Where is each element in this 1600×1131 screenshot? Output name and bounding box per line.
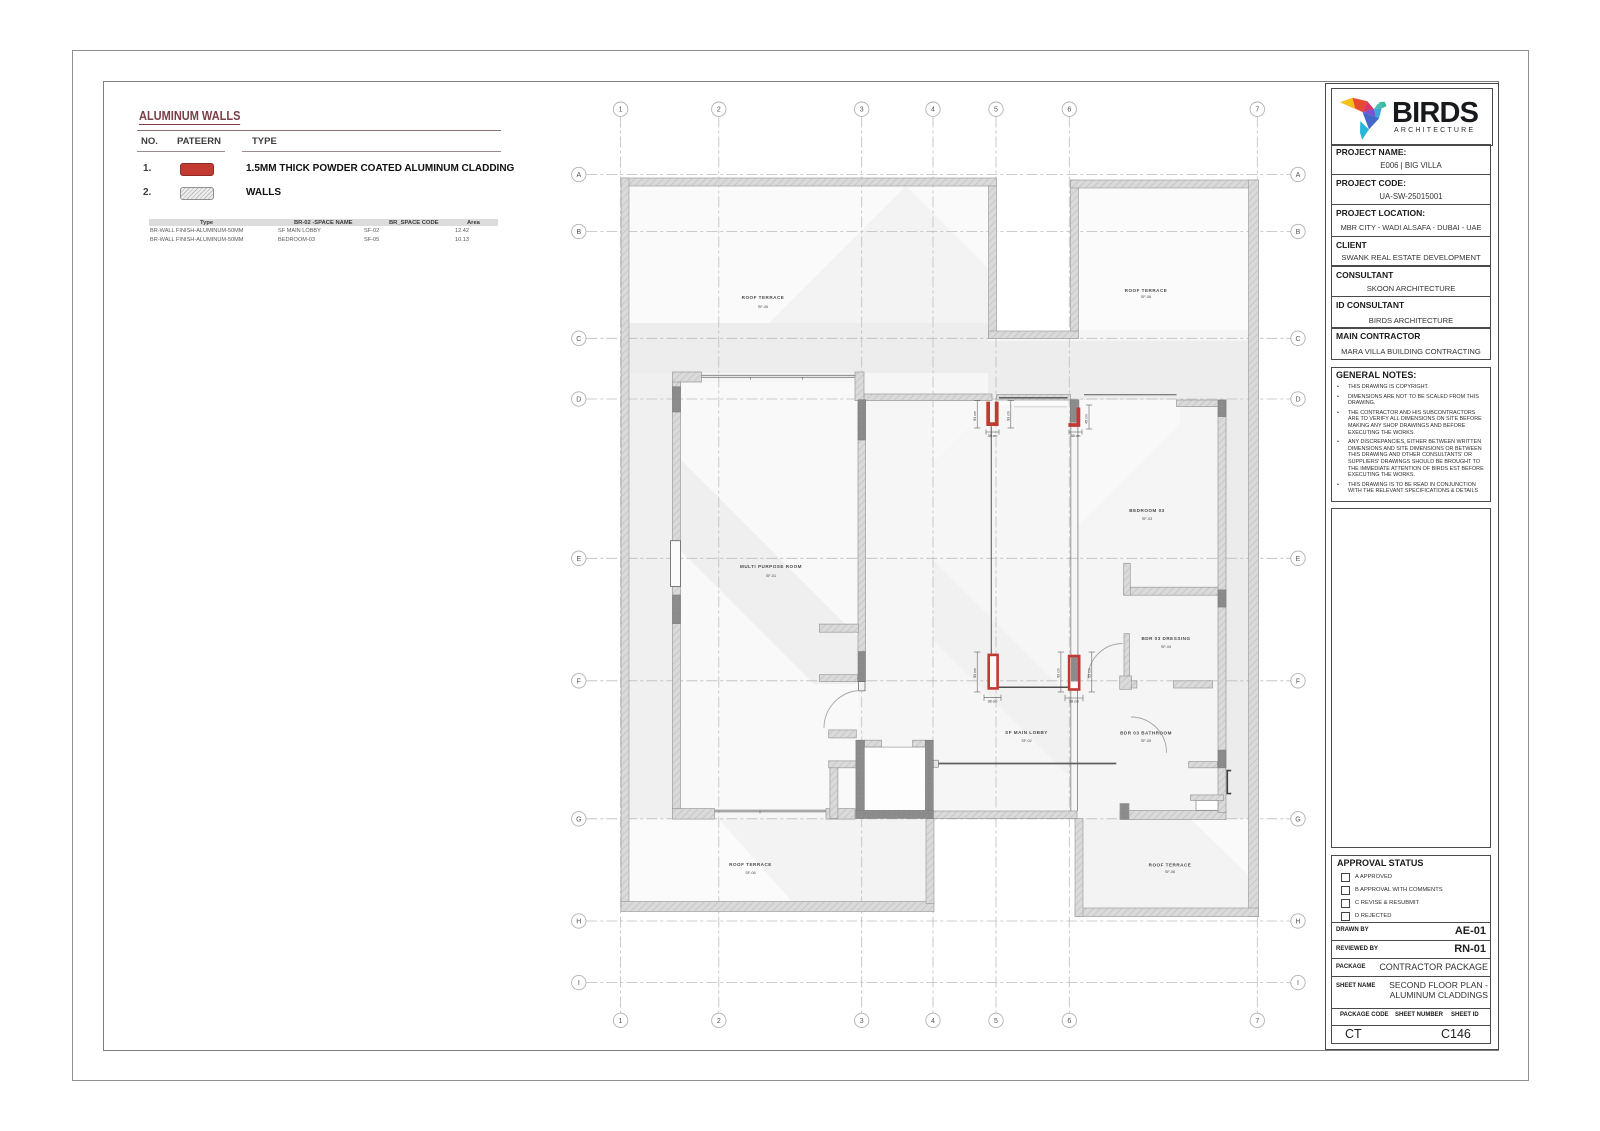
svg-text:I: I <box>1297 980 1299 987</box>
svg-text:B: B <box>576 229 581 236</box>
svg-text:93 cm: 93 cm <box>1006 411 1010 421</box>
svg-text:ROOF TERRACE: ROOF TERRACE <box>742 295 785 300</box>
svg-text:B: B <box>1296 229 1301 236</box>
svg-text:4: 4 <box>931 1018 935 1025</box>
svg-text:7: 7 <box>1255 107 1259 114</box>
svg-text:H: H <box>1295 919 1300 926</box>
svg-text:SF-06: SF-06 <box>1141 295 1151 299</box>
svg-text:ROOF TERRACE: ROOF TERRACE <box>1125 288 1168 293</box>
svg-text:SF-02: SF-02 <box>1021 739 1031 743</box>
svg-text:D: D <box>1295 397 1300 404</box>
svg-text:2: 2 <box>717 1018 721 1025</box>
svg-text:G: G <box>576 816 581 823</box>
svg-text:38 cm: 38 cm <box>1071 434 1081 438</box>
svg-text:93 cm: 93 cm <box>1057 668 1061 678</box>
svg-text:G: G <box>1295 816 1300 823</box>
svg-text:A: A <box>576 172 581 179</box>
svg-text:E: E <box>576 556 581 563</box>
svg-text:2: 2 <box>717 107 721 114</box>
svg-text:1: 1 <box>619 107 623 114</box>
svg-text:38 cm: 38 cm <box>1069 700 1079 704</box>
svg-text:C: C <box>1295 336 1300 343</box>
svg-text:ROOF TERRACE: ROOF TERRACE <box>729 862 772 867</box>
svg-text:55 cm: 55 cm <box>1087 668 1091 678</box>
svg-text:SF MAIN LOBBY: SF MAIN LOBBY <box>1005 730 1048 735</box>
svg-text:5: 5 <box>994 107 998 114</box>
svg-text:93 cm: 93 cm <box>973 668 977 678</box>
svg-text:ROOF TERRACE: ROOF TERRACE <box>1149 863 1192 868</box>
svg-text:3: 3 <box>860 1018 864 1025</box>
svg-text:SF-06: SF-06 <box>1165 870 1175 874</box>
svg-text:6: 6 <box>1067 1018 1071 1025</box>
svg-text:SF-05: SF-05 <box>1141 739 1151 743</box>
svg-text:6: 6 <box>1067 107 1071 114</box>
svg-text:E: E <box>1296 556 1301 563</box>
svg-text:BEDROOM 03: BEDROOM 03 <box>1129 508 1164 513</box>
svg-text:C: C <box>576 336 581 343</box>
svg-text:A: A <box>1296 172 1301 179</box>
svg-text:I: I <box>578 980 580 987</box>
svg-text:5: 5 <box>994 1018 998 1025</box>
svg-text:38 cm: 38 cm <box>988 699 998 703</box>
svg-text:BDR 03 DRESSING: BDR 03 DRESSING <box>1141 636 1190 641</box>
svg-text:SF-04: SF-04 <box>1161 645 1171 649</box>
svg-text:MULTI PURPOSE ROOM: MULTI PURPOSE ROOM <box>740 564 802 569</box>
svg-text:SF-01: SF-01 <box>766 574 776 578</box>
svg-text:BDR 03 BATHROOM: BDR 03 BATHROOM <box>1120 731 1172 736</box>
svg-text:45 cm: 45 cm <box>1085 414 1089 424</box>
svg-text:4: 4 <box>931 107 935 114</box>
svg-text:38 cm: 38 cm <box>988 434 998 438</box>
svg-text:D: D <box>576 397 581 404</box>
svg-text:SF-06: SF-06 <box>758 305 768 309</box>
svg-text:SF-03: SF-03 <box>1142 517 1152 521</box>
svg-text:1: 1 <box>619 1018 623 1025</box>
svg-text:SF-06: SF-06 <box>745 871 755 875</box>
svg-text:93 cm: 93 cm <box>973 411 977 421</box>
svg-text:7: 7 <box>1255 1018 1259 1025</box>
svg-text:F: F <box>1296 678 1300 685</box>
svg-text:3: 3 <box>860 107 864 114</box>
svg-text:H: H <box>576 919 581 926</box>
svg-text:F: F <box>577 678 581 685</box>
